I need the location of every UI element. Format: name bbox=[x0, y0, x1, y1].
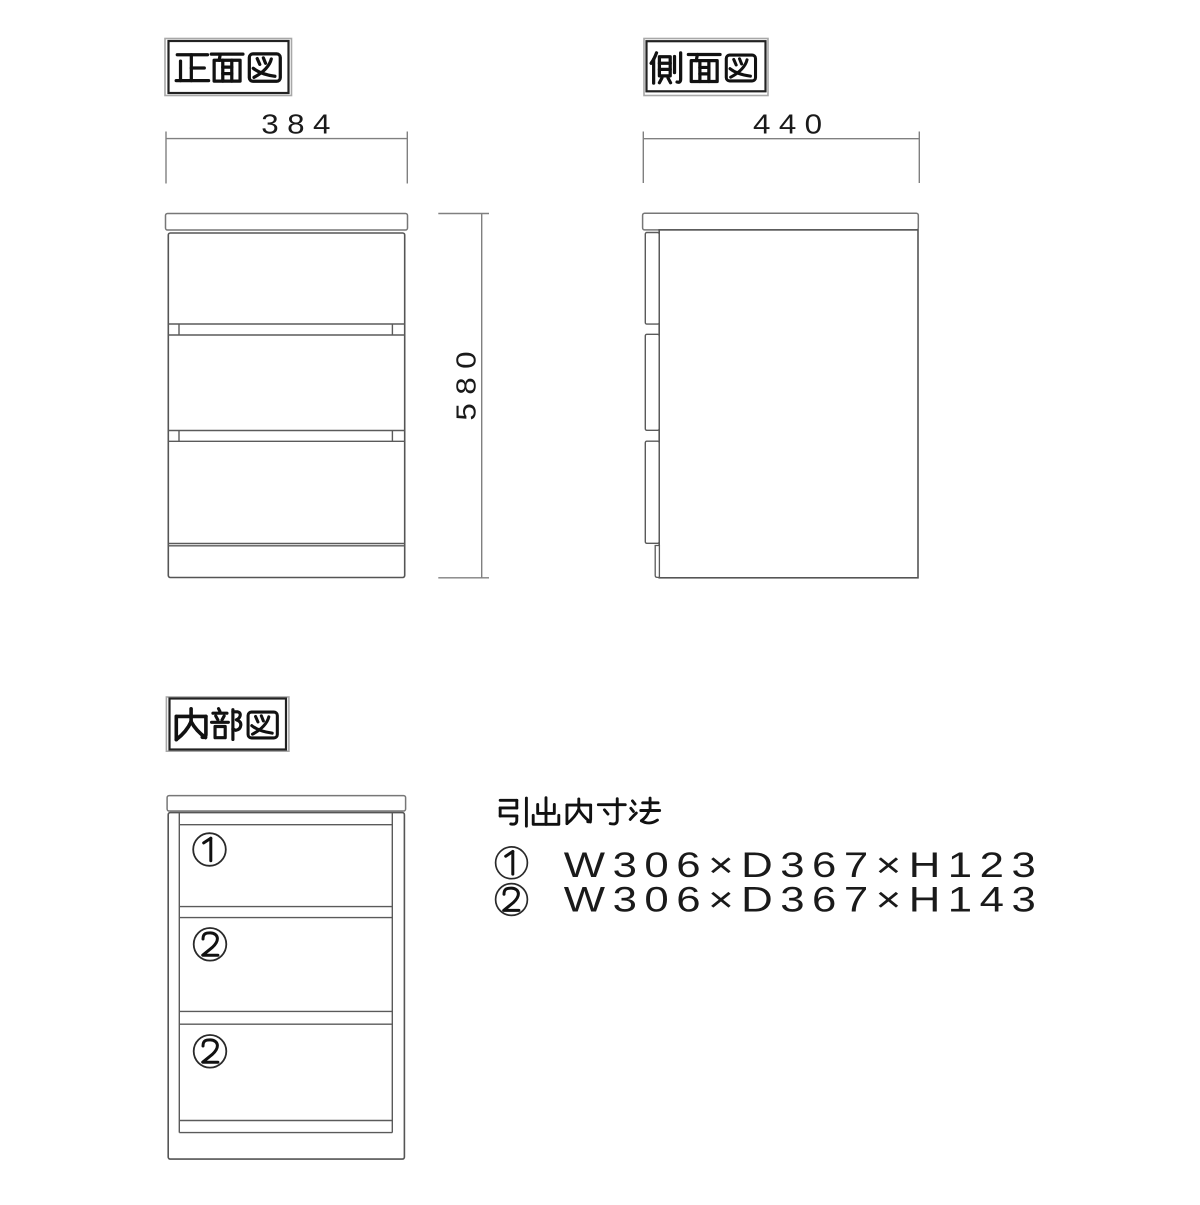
svg-text:440: 440 bbox=[753, 109, 831, 140]
svg-text:384: 384 bbox=[261, 109, 339, 140]
svg-text:W306×D367×H143: W306×D367×H143 bbox=[564, 881, 1043, 920]
svg-text:580: 580 bbox=[451, 343, 482, 421]
svg-text:W306×D367×H123: W306×D367×H123 bbox=[564, 846, 1043, 885]
